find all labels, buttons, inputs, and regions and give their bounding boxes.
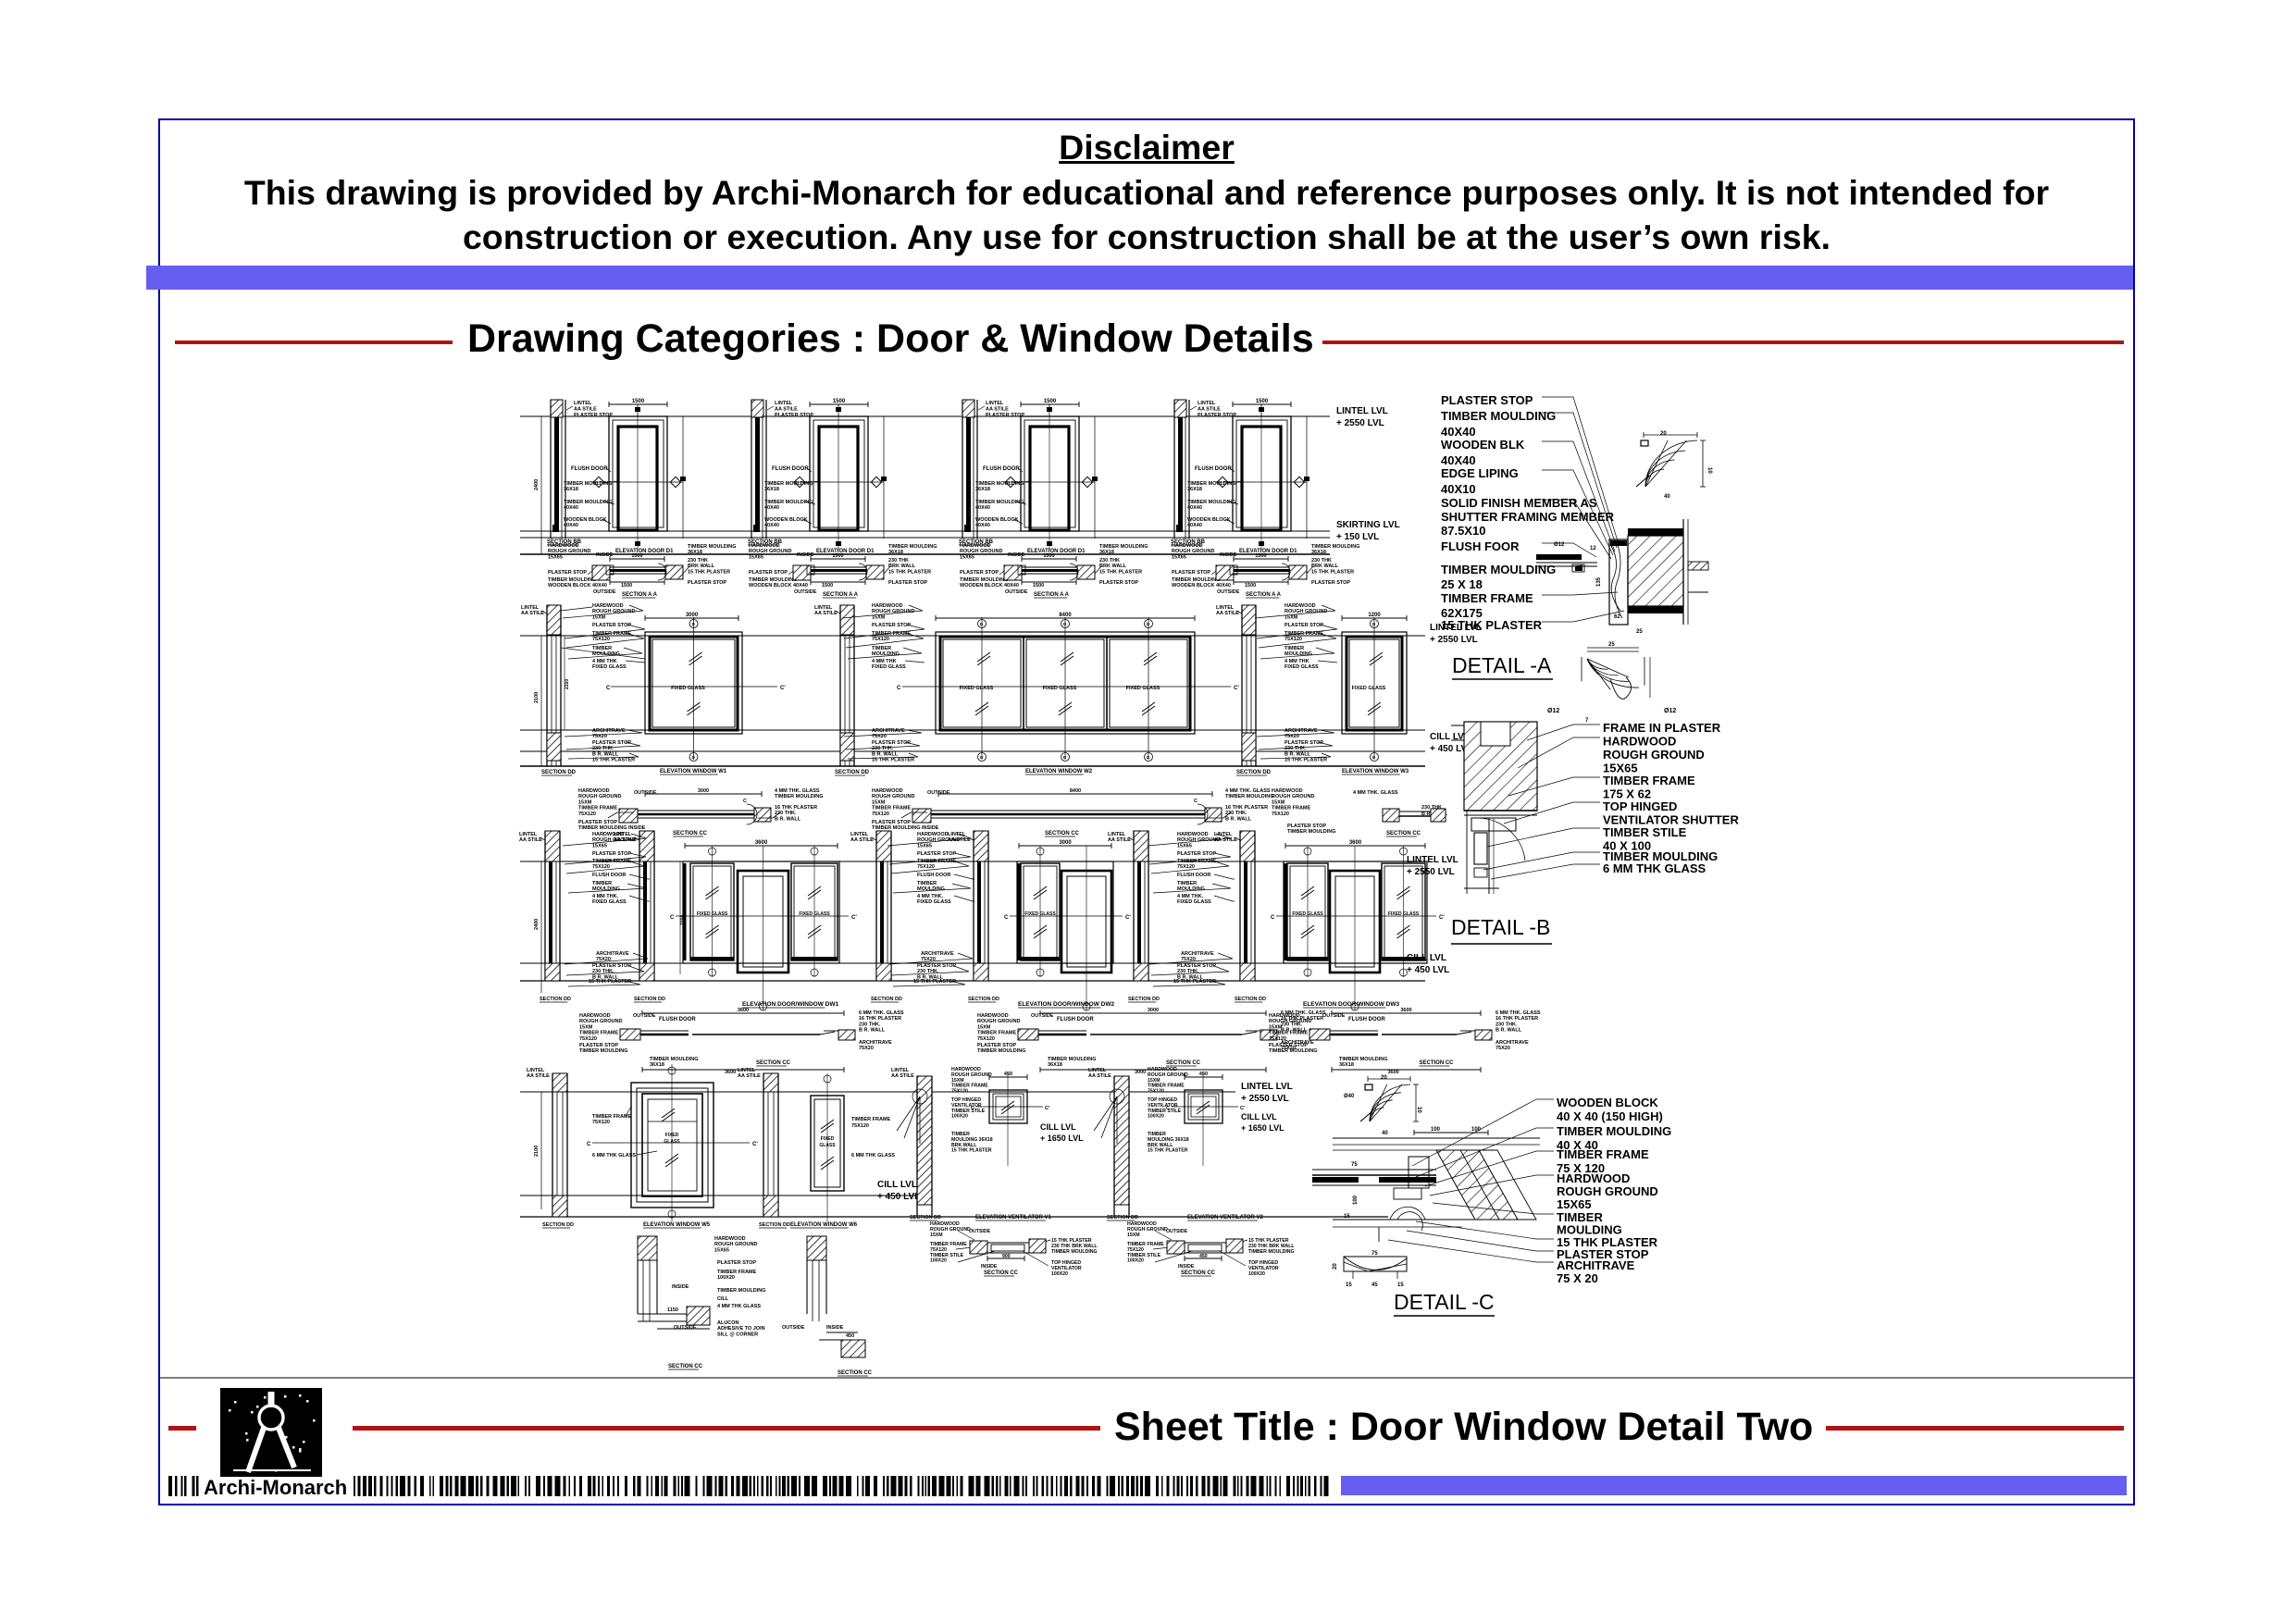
svg-text:LINTEL: LINTEL xyxy=(519,832,538,837)
svg-text:ARCHITRAVE: ARCHITRAVE xyxy=(592,728,626,734)
svg-text:OUTSIDE: OUTSIDE xyxy=(633,1013,656,1019)
svg-text:15X65: 15X65 xyxy=(749,554,763,560)
svg-text:WOODEN BLOCK: WOODEN BLOCK xyxy=(564,517,606,523)
svg-text:B R. WALL: B R. WALL xyxy=(775,816,801,822)
svg-text:SECTION DD: SECTION DD xyxy=(910,1215,941,1220)
svg-text:TIMBER STILE: TIMBER STILE xyxy=(1603,825,1687,839)
svg-text:15 THK PLASTER: 15 THK PLASTER xyxy=(951,1148,992,1154)
svg-text:TIMBER MOULDING: TIMBER MOULDING xyxy=(650,1057,699,1062)
svg-text:40X40: 40X40 xyxy=(975,523,990,528)
svg-text:3000: 3000 xyxy=(686,613,699,618)
svg-text:AA STILE: AA STILE xyxy=(1216,611,1239,616)
svg-text:AA STILE: AA STILE xyxy=(850,837,874,843)
svg-text:SECTION CC: SECTION CC xyxy=(756,1060,791,1066)
svg-text:TIMBER MOULDING: TIMBER MOULDING xyxy=(975,481,1024,487)
svg-text:HARDWOOD: HARDWOOD xyxy=(1557,1171,1630,1185)
svg-text:AA STILE: AA STILE xyxy=(1198,407,1221,413)
svg-text:15X65: 15X65 xyxy=(592,843,607,849)
svg-text:HARDWOOD: HARDWOOD xyxy=(1177,832,1209,837)
svg-text:D: D xyxy=(692,755,696,760)
svg-text:PLASTER STOP: PLASTER STOP xyxy=(1269,1043,1308,1048)
svg-text:SECTION A A: SECTION A A xyxy=(823,592,859,598)
svg-text:25: 25 xyxy=(1608,642,1615,648)
svg-text:SECTION CC: SECTION CC xyxy=(838,1370,873,1376)
svg-text:PLASTER STOP: PLASTER STOP xyxy=(888,580,927,586)
svg-text:HARDWOOD: HARDWOOD xyxy=(1172,543,1203,549)
svg-text:15 THK PLASTER: 15 THK PLASTER xyxy=(888,569,931,575)
svg-text:FLUSH DOOR: FLUSH DOOR xyxy=(1348,1017,1385,1022)
svg-text:1500: 1500 xyxy=(1043,553,1054,559)
svg-text:SECTION CC: SECTION CC xyxy=(673,831,708,836)
svg-text:40X40: 40X40 xyxy=(564,523,578,528)
svg-text:C': C' xyxy=(752,1142,758,1147)
svg-text:TIMBER MOULDING: TIMBER MOULDING xyxy=(717,1288,766,1294)
svg-text:PLASTER STOP: PLASTER STOP xyxy=(917,963,956,969)
svg-text:LINTEL: LINTEL xyxy=(1198,401,1216,406)
svg-text:4 MM THK: 4 MM THK xyxy=(1285,659,1309,664)
svg-text:40: 40 xyxy=(1382,1131,1388,1136)
svg-text:15X65: 15X65 xyxy=(1172,554,1186,560)
svg-text:LINTEL: LINTEL xyxy=(527,1068,545,1073)
svg-text:TIMBER MOULDING: TIMBER MOULDING xyxy=(1441,563,1556,576)
svg-text:+ 450 LVL: + 450 LVL xyxy=(1407,965,1449,975)
svg-text:40X40: 40X40 xyxy=(1441,453,1476,467)
svg-text:PLASTER STOP: PLASTER STOP xyxy=(1099,580,1138,586)
svg-text:ROUGH GROUND: ROUGH GROUND xyxy=(1269,1019,1311,1024)
svg-text:6 MM THK GLASS: 6 MM THK GLASS xyxy=(592,1153,636,1158)
svg-text:TIMBER FRAME: TIMBER FRAME xyxy=(1441,591,1533,605)
svg-text:LINTEL: LINTEL xyxy=(738,1068,756,1073)
svg-text:HARDWOOD: HARDWOOD xyxy=(548,543,579,549)
svg-text:16 THK PLASTER: 16 THK PLASTER xyxy=(1225,805,1268,811)
svg-text:900: 900 xyxy=(1002,1254,1011,1259)
svg-text:45: 45 xyxy=(1371,1282,1378,1288)
svg-text:+ 1650 LVL: + 1650 LVL xyxy=(1040,1134,1084,1143)
svg-text:TIMBER MOULDING: TIMBER MOULDING xyxy=(1269,1048,1318,1054)
svg-text:4 MM THK: 4 MM THK xyxy=(592,659,617,664)
svg-text:TIMBER MOULDING: TIMBER MOULDING xyxy=(1339,1057,1388,1062)
svg-text:75X120: 75X120 xyxy=(592,864,610,870)
svg-text:230 THK.: 230 THK. xyxy=(872,746,894,751)
svg-text:FIXED GLASS: FIXED GLASS xyxy=(1024,911,1056,917)
svg-text:1500: 1500 xyxy=(833,399,846,404)
svg-text:ADHESIVE TO JOIN: ADHESIVE TO JOIN xyxy=(717,1326,765,1332)
svg-text:FIXED GLASS: FIXED GLASS xyxy=(872,664,906,670)
svg-text:36X18: 36X18 xyxy=(1048,1062,1062,1068)
svg-text:36X18: 36X18 xyxy=(1339,1062,1354,1068)
svg-text:36X18: 36X18 xyxy=(650,1062,664,1068)
svg-text:OUTSIDE: OUTSIDE xyxy=(1031,1013,1054,1019)
svg-text:BRK WALL: BRK WALL xyxy=(1311,564,1339,569)
svg-text:3600: 3600 xyxy=(1388,1070,1399,1075)
svg-text:C: C xyxy=(897,686,901,691)
svg-text:OUTSIDE: OUTSIDE xyxy=(1217,589,1240,595)
svg-text:PLASTER STOP: PLASTER STOP xyxy=(579,1043,618,1048)
svg-text:15X65: 15X65 xyxy=(1557,1197,1592,1211)
svg-text:SECTION A A: SECTION A A xyxy=(1246,592,1282,598)
svg-text:TIMBER MOULDING: TIMBER MOULDING xyxy=(1051,1249,1098,1255)
svg-text:15: 15 xyxy=(1397,1282,1404,1288)
svg-text:+ 1650 LVL: + 1650 LVL xyxy=(1241,1123,1285,1133)
svg-text:3600: 3600 xyxy=(725,1070,736,1075)
svg-text:TIMBER: TIMBER xyxy=(872,646,891,651)
svg-text:3000: 3000 xyxy=(1135,1070,1146,1075)
svg-text:WOODEN BLOCK 40X40: WOODEN BLOCK 40X40 xyxy=(1172,583,1231,588)
svg-text:CILL LVL: CILL LVL xyxy=(877,1180,917,1190)
svg-text:SHUTTER FRAMING MEMBER: SHUTTER FRAMING MEMBER xyxy=(1441,510,1615,524)
svg-text:15X65: 15X65 xyxy=(548,554,563,560)
svg-text:1500: 1500 xyxy=(1033,583,1044,588)
svg-text:230 THK.: 230 THK. xyxy=(592,746,614,751)
svg-text:PLASTER STOP: PLASTER STOP xyxy=(1285,740,1323,746)
svg-text:TIMBER MOULDING: TIMBER MOULDING xyxy=(749,577,798,583)
svg-text:ROUGH GROUND: ROUGH GROUND xyxy=(1172,549,1214,554)
svg-text:C': C' xyxy=(1439,915,1445,921)
svg-text:TIMBER FRAME: TIMBER FRAME xyxy=(1557,1147,1649,1161)
svg-text:B R. WALL: B R. WALL xyxy=(1285,751,1311,757)
svg-text:75X120: 75X120 xyxy=(1269,1036,1286,1042)
svg-text:15X65: 15X65 xyxy=(714,1247,729,1253)
svg-text:TIMBER MOULDING: TIMBER MOULDING xyxy=(548,577,597,583)
svg-text:ROUGH GROUND: ROUGH GROUND xyxy=(548,549,590,554)
svg-text:AA STILE: AA STILE xyxy=(775,407,798,413)
svg-text:PLASTER STOP: PLASTER STOP xyxy=(1285,623,1323,628)
svg-text:SOLID FINISH MEMBER AS: SOLID FINISH MEMBER AS xyxy=(1441,496,1597,510)
svg-text:2400: 2400 xyxy=(534,479,540,490)
svg-text:OUTSIDE: OUTSIDE xyxy=(674,1325,697,1331)
svg-text:ELEVATION DOOR D1: ELEVATION DOOR D1 xyxy=(615,549,674,554)
svg-text:SECTION DD: SECTION DD xyxy=(871,997,902,1002)
svg-text:BRK WALL: BRK WALL xyxy=(688,564,715,569)
svg-text:C: C xyxy=(670,915,675,921)
svg-text:1500: 1500 xyxy=(621,583,632,588)
svg-text:HARDWOOD: HARDWOOD xyxy=(872,788,903,794)
svg-text:ROUGH GROUND: ROUGH GROUND xyxy=(714,1242,757,1247)
svg-text:4 MM THK GLASS: 4 MM THK GLASS xyxy=(717,1304,761,1309)
svg-text:ELEVATION WINDOW W6: ELEVATION WINDOW W6 xyxy=(790,1222,858,1228)
svg-text:16 THK PLASTER: 16 THK PLASTER xyxy=(1496,1016,1538,1022)
svg-text:TIMBER FRAME: TIMBER FRAME xyxy=(578,806,617,811)
svg-text:20: 20 xyxy=(1660,431,1667,437)
svg-text:20: 20 xyxy=(1333,1263,1338,1270)
svg-text:WOODEN BLOCK 40X40: WOODEN BLOCK 40X40 xyxy=(548,583,607,588)
svg-text:TIMBER FRAME: TIMBER FRAME xyxy=(717,1270,756,1275)
svg-text:SECTION CC: SECTION CC xyxy=(1386,831,1421,836)
svg-text:TIMBER MOULDING: TIMBER MOULDING xyxy=(764,500,813,505)
svg-text:C: C xyxy=(971,1106,974,1111)
svg-text:MOULDING: MOULDING xyxy=(872,651,900,657)
svg-text:PLASTER STOP: PLASTER STOP xyxy=(1441,393,1533,407)
svg-text:C': C' xyxy=(780,686,786,691)
svg-text:TIMBER: TIMBER xyxy=(592,881,612,886)
svg-text:PLASTER STOP: PLASTER STOP xyxy=(872,623,911,628)
svg-text:ELEVATION VENTILATOR V1: ELEVATION VENTILATOR V1 xyxy=(975,1215,1052,1220)
svg-text:Ø12: Ø12 xyxy=(1664,708,1676,714)
svg-text:HARDWOOD: HARDWOOD xyxy=(1269,1013,1300,1019)
svg-text:+ 2550 LVL: + 2550 LVL xyxy=(1407,867,1455,877)
svg-text:LINTEL: LINTEL xyxy=(814,605,833,611)
svg-text:HARDWOOD: HARDWOOD xyxy=(1272,788,1303,794)
svg-text:FLUSH DOOR: FLUSH DOOR xyxy=(571,466,608,472)
svg-text:CILL: CILL xyxy=(717,1296,729,1302)
svg-text:230 THK: 230 THK xyxy=(1311,558,1332,564)
svg-text:TIMBER: TIMBER xyxy=(592,646,612,651)
svg-text:1500: 1500 xyxy=(631,553,642,559)
svg-text:GLASS: GLASS xyxy=(664,1139,680,1145)
svg-text:AA STILE: AA STILE xyxy=(1108,837,1131,843)
svg-text:15 THK PLASTER: 15 THK PLASTER xyxy=(1173,979,1216,985)
svg-text:15XM: 15XM xyxy=(1269,1024,1283,1030)
svg-text:FIXED GLASS: FIXED GLASS xyxy=(917,899,951,905)
svg-text:FIXED GLASS: FIXED GLASS xyxy=(1177,899,1211,905)
svg-text:B R. WALL: B R. WALL xyxy=(1225,816,1252,822)
svg-text:ARCHITRAVE: ARCHITRAVE xyxy=(1557,1258,1635,1272)
svg-text:FIXED GLASS: FIXED GLASS xyxy=(592,899,627,905)
svg-text:AA STILE: AA STILE xyxy=(519,837,542,843)
svg-text:15X65: 15X65 xyxy=(960,554,974,560)
svg-text:TIMBER MOULDING: TIMBER MOULDING xyxy=(1187,500,1236,505)
svg-text:PLASTER STOP: PLASTER STOP xyxy=(592,963,631,969)
svg-text:B R. WALL: B R. WALL xyxy=(592,751,619,757)
svg-text:100X20: 100X20 xyxy=(717,1275,735,1281)
svg-text:C': C' xyxy=(1045,1106,1050,1111)
svg-text:3600: 3600 xyxy=(1400,1008,1411,1013)
svg-text:LINTEL: LINTEL xyxy=(1216,605,1235,611)
svg-text:C': C' xyxy=(1240,1106,1246,1111)
svg-text:3000: 3000 xyxy=(1148,1008,1159,1013)
svg-text:AA STILE: AA STILE xyxy=(527,1073,550,1079)
svg-text:4 MM THK: 4 MM THK xyxy=(872,659,897,664)
svg-text:75: 75 xyxy=(1371,1251,1378,1257)
svg-text:75X120: 75X120 xyxy=(578,811,596,817)
svg-text:75 X 20: 75 X 20 xyxy=(1557,1271,1598,1285)
svg-text:FLUSH DOOR: FLUSH DOOR xyxy=(1177,873,1210,878)
svg-text:36X18: 36X18 xyxy=(1311,550,1326,555)
svg-text:2100: 2100 xyxy=(534,692,540,703)
svg-text:HARDWOOD: HARDWOOD xyxy=(578,788,610,794)
svg-text:ARCHITRAVE: ARCHITRAVE xyxy=(1181,951,1214,957)
svg-text:FLUSH DOOR: FLUSH DOOR xyxy=(1057,1017,1094,1022)
svg-text:ELEVATION VENTILATOR V2: ELEVATION VENTILATOR V2 xyxy=(1187,1215,1264,1220)
svg-text:TIMBER MOULDING: TIMBER MOULDING xyxy=(579,1048,628,1054)
svg-text:ARCHITRAVE: ARCHITRAVE xyxy=(921,951,954,957)
svg-text:FLUSH DOOR: FLUSH DOOR xyxy=(1195,466,1232,472)
svg-text:ELEVATION DOOR D1: ELEVATION DOOR D1 xyxy=(1239,549,1297,554)
svg-text:15XM: 15XM xyxy=(930,1233,943,1238)
svg-text:ROUGH GROUND: ROUGH GROUND xyxy=(872,794,914,799)
svg-text:15XM: 15XM xyxy=(579,1024,593,1030)
svg-text:40 X 40 (150 HIGH): 40 X 40 (150 HIGH) xyxy=(1557,1109,1663,1123)
svg-text:SECTION DD: SECTION DD xyxy=(759,1222,790,1228)
svg-text:C: C xyxy=(1166,1106,1170,1111)
svg-text:FLUSH DOOR: FLUSH DOOR xyxy=(983,466,1020,472)
svg-text:WOODEN BLOCK 40X40: WOODEN BLOCK 40X40 xyxy=(749,583,808,588)
svg-text:INSIDE: INSIDE xyxy=(1220,552,1237,558)
svg-text:TIMBER MOULDING: TIMBER MOULDING xyxy=(1187,481,1236,487)
svg-text:FIXED GLASS: FIXED GLASS xyxy=(1285,664,1319,670)
svg-text:ELEVATION WINDOW W5: ELEVATION WINDOW W5 xyxy=(643,1222,711,1228)
svg-text:+ 2550 LVL: + 2550 LVL xyxy=(1430,635,1478,645)
svg-text:15 THK PLASTER: 15 THK PLASTER xyxy=(872,758,914,763)
svg-text:75X120: 75X120 xyxy=(977,1036,995,1042)
svg-text:15XM: 15XM xyxy=(872,799,886,805)
svg-text:LINTEL: LINTEL xyxy=(986,401,1004,406)
svg-text:HARDWOOD: HARDWOOD xyxy=(1603,735,1676,749)
svg-text:4 MM THK.: 4 MM THK. xyxy=(917,894,944,899)
svg-text:SECTION CC: SECTION CC xyxy=(1420,1060,1455,1066)
svg-text:ARCHITRAVE: ARCHITRAVE xyxy=(872,728,905,734)
svg-text:LINTEL: LINTEL xyxy=(1088,1068,1107,1073)
svg-text:TIMBER: TIMBER xyxy=(1177,881,1197,886)
svg-text:TIMBER MOULDING: TIMBER MOULDING xyxy=(1172,577,1221,583)
svg-text:4 MM THK.: 4 MM THK. xyxy=(592,894,619,899)
svg-text:HARDWOOD: HARDWOOD xyxy=(977,1013,1009,1019)
svg-text:36X18: 36X18 xyxy=(564,487,578,492)
svg-text:PLASTER STOP: PLASTER STOP xyxy=(775,413,813,418)
svg-text:D: D xyxy=(1372,622,1376,626)
svg-text:FIXED GLASS: FIXED GLASS xyxy=(592,664,627,670)
svg-text:INSIDE: INSIDE xyxy=(628,825,646,831)
svg-text:ELEVATION WINDOW W3: ELEVATION WINDOW W3 xyxy=(1342,769,1409,774)
svg-text:ARCHITRAVE: ARCHITRAVE xyxy=(1496,1040,1529,1046)
svg-text:20: 20 xyxy=(1381,1075,1387,1081)
svg-text:C': C' xyxy=(851,915,857,921)
svg-text:PLASTER STOP: PLASTER STOP xyxy=(1172,570,1210,576)
svg-text:3600: 3600 xyxy=(755,840,768,846)
svg-text:SECTION CC: SECTION CC xyxy=(668,1364,703,1369)
svg-text:40X10: 40X10 xyxy=(1441,482,1476,496)
svg-text:TIMBER FRAME: TIMBER FRAME xyxy=(592,631,631,637)
svg-text:ROUGH GROUND: ROUGH GROUND xyxy=(579,1019,622,1024)
svg-text:PLASTER STOP: PLASTER STOP xyxy=(592,740,631,746)
svg-text:D: D xyxy=(1147,755,1150,760)
svg-text:HARDWOOD: HARDWOOD xyxy=(872,603,903,609)
svg-text:LINTEL: LINTEL xyxy=(521,605,540,611)
svg-text:75X120: 75X120 xyxy=(1272,811,1289,817)
svg-text:SECTION A A: SECTION A A xyxy=(1034,592,1070,598)
svg-text:HARDWOOD: HARDWOOD xyxy=(592,603,624,609)
svg-text:ALUCON: ALUCON xyxy=(717,1320,739,1326)
svg-text:+ 450 LVL: + 450 LVL xyxy=(877,1192,920,1202)
svg-text:15: 15 xyxy=(1346,1282,1352,1288)
svg-text:230 THK.: 230 THK. xyxy=(1496,1022,1518,1027)
svg-text:ELEVATION DOOR/WINDOW DW3: ELEVATION DOOR/WINDOW DW3 xyxy=(1303,1001,1399,1008)
svg-text:OUTSIDE: OUTSIDE xyxy=(593,589,616,595)
svg-text:75X120: 75X120 xyxy=(951,1089,968,1095)
svg-text:D: D xyxy=(980,622,984,626)
svg-text:FIXED GLASS: FIXED GLASS xyxy=(799,911,830,917)
svg-text:TIMBER MOULDING: TIMBER MOULDING xyxy=(1557,1124,1671,1138)
svg-text:TIMBER MOULDING: TIMBER MOULDING xyxy=(1225,794,1274,799)
svg-text:TIMBER MOULDING: TIMBER MOULDING xyxy=(564,500,613,505)
svg-text:75X120: 75X120 xyxy=(592,1120,610,1125)
svg-text:SECTION DD: SECTION DD xyxy=(1235,997,1266,1002)
svg-text:DETAIL -A: DETAIL -A xyxy=(1452,653,1552,677)
svg-text:WOODEN BLOCK: WOODEN BLOCK xyxy=(764,517,807,523)
svg-text:TIMBER FRAME: TIMBER FRAME xyxy=(1285,631,1323,637)
svg-text:87.5X10: 87.5X10 xyxy=(1441,524,1485,538)
svg-text:FIXED GLASS: FIXED GLASS xyxy=(1352,686,1386,691)
svg-text:TIMBER FRAME: TIMBER FRAME xyxy=(872,631,911,637)
svg-text:FLUSH FOOR: FLUSH FOOR xyxy=(1441,539,1520,553)
svg-text:1500: 1500 xyxy=(832,553,843,559)
svg-text:HARDWOOD: HARDWOOD xyxy=(714,1236,746,1242)
svg-text:D: D xyxy=(1063,755,1067,760)
svg-text:Ø12: Ø12 xyxy=(1547,708,1559,714)
svg-text:+ 150 LVL: + 150 LVL xyxy=(1336,532,1379,542)
svg-text:100: 100 xyxy=(1431,1127,1441,1133)
svg-text:INSIDE: INSIDE xyxy=(1178,1264,1195,1270)
svg-text:SILL @ CORNER: SILL @ CORNER xyxy=(717,1332,758,1337)
svg-text:15XM: 15XM xyxy=(592,614,606,620)
svg-text:75X120: 75X120 xyxy=(917,864,935,870)
svg-text:230 THK.: 230 THK. xyxy=(1285,746,1307,751)
svg-text:TIMBER FRAME: TIMBER FRAME xyxy=(1269,1031,1308,1036)
svg-text:TIMBER MOULDING: TIMBER MOULDING xyxy=(764,481,813,487)
svg-text:2100: 2100 xyxy=(534,1146,540,1157)
svg-text:D: D xyxy=(1372,755,1376,760)
svg-text:135: 135 xyxy=(1596,576,1602,587)
svg-text:ELEVATION DOOR D1: ELEVATION DOOR D1 xyxy=(1027,549,1086,554)
svg-text:C': C' xyxy=(1125,915,1131,921)
svg-text:16 THK PLASTER: 16 THK PLASTER xyxy=(859,1016,901,1022)
svg-text:OUTSIDE: OUTSIDE xyxy=(782,1325,805,1331)
svg-text:8400: 8400 xyxy=(1070,788,1081,794)
svg-text:75X120: 75X120 xyxy=(579,1036,597,1042)
svg-text:LINTEL: LINTEL xyxy=(1214,832,1233,837)
svg-text:PLASTER STOP: PLASTER STOP xyxy=(960,570,999,576)
svg-text:OUTSIDE: OUTSIDE xyxy=(969,1229,991,1234)
svg-text:WOODEN BLOCK 40X40: WOODEN BLOCK 40X40 xyxy=(960,583,1019,588)
svg-text:450: 450 xyxy=(1004,1072,1012,1077)
svg-text:450: 450 xyxy=(1199,1072,1208,1077)
svg-text:C: C xyxy=(587,1142,591,1147)
svg-text:15XM: 15XM xyxy=(1127,1233,1140,1238)
svg-text:230 THK.: 230 THK. xyxy=(775,811,797,816)
svg-text:TIMBER MOULDING: TIMBER MOULDING xyxy=(1287,829,1336,835)
svg-text:15 THK PLASTER: 15 THK PLASTER xyxy=(1148,1148,1188,1154)
svg-text:ROUGH GROUND: ROUGH GROUND xyxy=(749,549,791,554)
svg-text:SECTION DD: SECTION DD xyxy=(835,770,870,775)
svg-text:CILL LVL: CILL LVL xyxy=(1040,1122,1076,1132)
svg-text:MOULDING: MOULDING xyxy=(1285,651,1312,657)
svg-text:DETAIL -C: DETAIL -C xyxy=(1394,1290,1495,1314)
svg-text:OUTSIDE: OUTSIDE xyxy=(1166,1229,1188,1234)
svg-text:FIXED GLASS: FIXED GLASS xyxy=(960,686,994,691)
svg-text:36X18: 36X18 xyxy=(1187,487,1202,492)
svg-text:D: D xyxy=(1063,622,1067,626)
svg-text:PLASTER STOP: PLASTER STOP xyxy=(1287,824,1326,829)
svg-text:TIMBER FRAME: TIMBER FRAME xyxy=(977,1031,1016,1036)
svg-text:C: C xyxy=(1194,799,1198,804)
svg-text:SECTION CC: SECTION CC xyxy=(1181,1270,1216,1276)
svg-text:LINTEL: LINTEL xyxy=(850,832,869,837)
svg-text:HARDWOOD: HARDWOOD xyxy=(1285,603,1316,609)
svg-text:OUTSIDE: OUTSIDE xyxy=(794,589,817,595)
svg-text:Ø40: Ø40 xyxy=(1344,1094,1355,1099)
svg-text:PLASTER STOP: PLASTER STOP xyxy=(688,580,726,586)
svg-text:FIXED GLASS: FIXED GLASS xyxy=(1388,911,1420,917)
svg-text:SECTION CC: SECTION CC xyxy=(1166,1060,1201,1066)
svg-text:36X18: 36X18 xyxy=(764,487,779,492)
svg-text:1500: 1500 xyxy=(822,583,833,588)
svg-text:36X18: 36X18 xyxy=(688,550,702,555)
svg-text:FLUSH DOOR: FLUSH DOOR xyxy=(772,466,809,472)
svg-text:TIMBER MOULDING: TIMBER MOULDING xyxy=(775,794,824,799)
svg-text:ROUGH GROUND: ROUGH GROUND xyxy=(578,794,621,799)
svg-text:SECTION CC: SECTION CC xyxy=(1045,831,1080,836)
svg-text:36X18: 36X18 xyxy=(888,550,903,555)
